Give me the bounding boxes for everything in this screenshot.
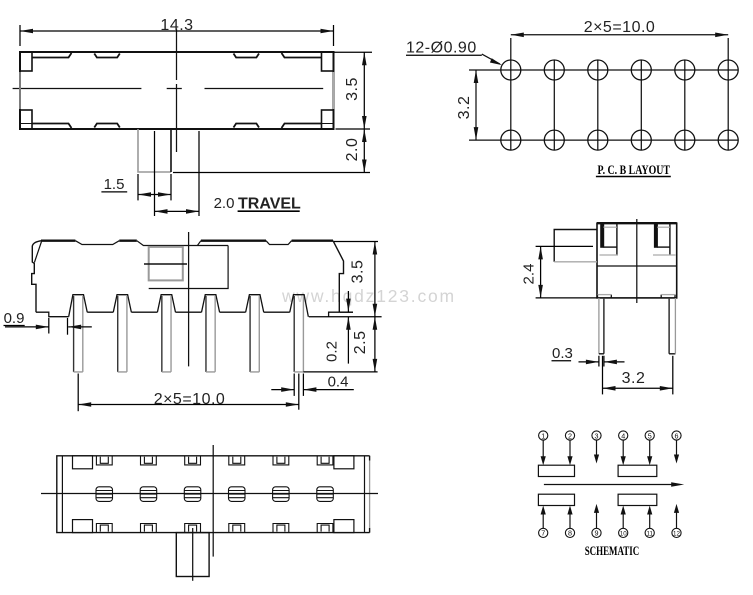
- svg-text:2.4: 2.4: [521, 264, 538, 285]
- svg-text:12-Ø0.90: 12-Ø0.90: [406, 40, 477, 57]
- svg-text:3.5: 3.5: [344, 77, 361, 101]
- svg-text:0.2: 0.2: [323, 341, 340, 362]
- svg-text:2: 2: [568, 431, 572, 440]
- svg-text:6: 6: [675, 431, 679, 440]
- svg-text:7: 7: [541, 529, 545, 538]
- svg-text:SCHEMATIC: SCHEMATIC: [585, 543, 640, 558]
- svg-text:0.9: 0.9: [4, 310, 25, 327]
- svg-text:14.3: 14.3: [160, 17, 193, 34]
- svg-text:9: 9: [595, 529, 599, 538]
- svg-text:3.2: 3.2: [456, 96, 473, 120]
- svg-text:1: 1: [541, 431, 545, 440]
- svg-text:1.5: 1.5: [104, 176, 125, 193]
- svg-text:2.5: 2.5: [352, 331, 369, 355]
- svg-text:3: 3: [595, 431, 599, 440]
- svg-text:5: 5: [648, 431, 652, 440]
- svg-text:2×5=10.0: 2×5=10.0: [584, 19, 656, 36]
- svg-text:11: 11: [646, 531, 653, 538]
- svg-text:TRAVEL: TRAVEL: [238, 196, 301, 213]
- svg-text:3.5: 3.5: [350, 260, 367, 284]
- svg-text:12: 12: [673, 531, 680, 538]
- svg-text:2.0: 2.0: [214, 195, 235, 212]
- svg-text:P. C. B LAYOUT: P. C. B LAYOUT: [598, 163, 671, 177]
- svg-text:0.4: 0.4: [328, 374, 349, 391]
- svg-text:2×5=10.0: 2×5=10.0: [154, 391, 226, 408]
- svg-text:4: 4: [621, 431, 625, 440]
- svg-text:8: 8: [568, 529, 572, 538]
- svg-text:10: 10: [620, 531, 627, 538]
- svg-text:www.hqdz123.com: www.hqdz123.com: [281, 286, 456, 306]
- svg-text:0.3: 0.3: [552, 345, 573, 362]
- svg-text:2.0: 2.0: [344, 138, 361, 162]
- svg-text:3.2: 3.2: [622, 370, 646, 387]
